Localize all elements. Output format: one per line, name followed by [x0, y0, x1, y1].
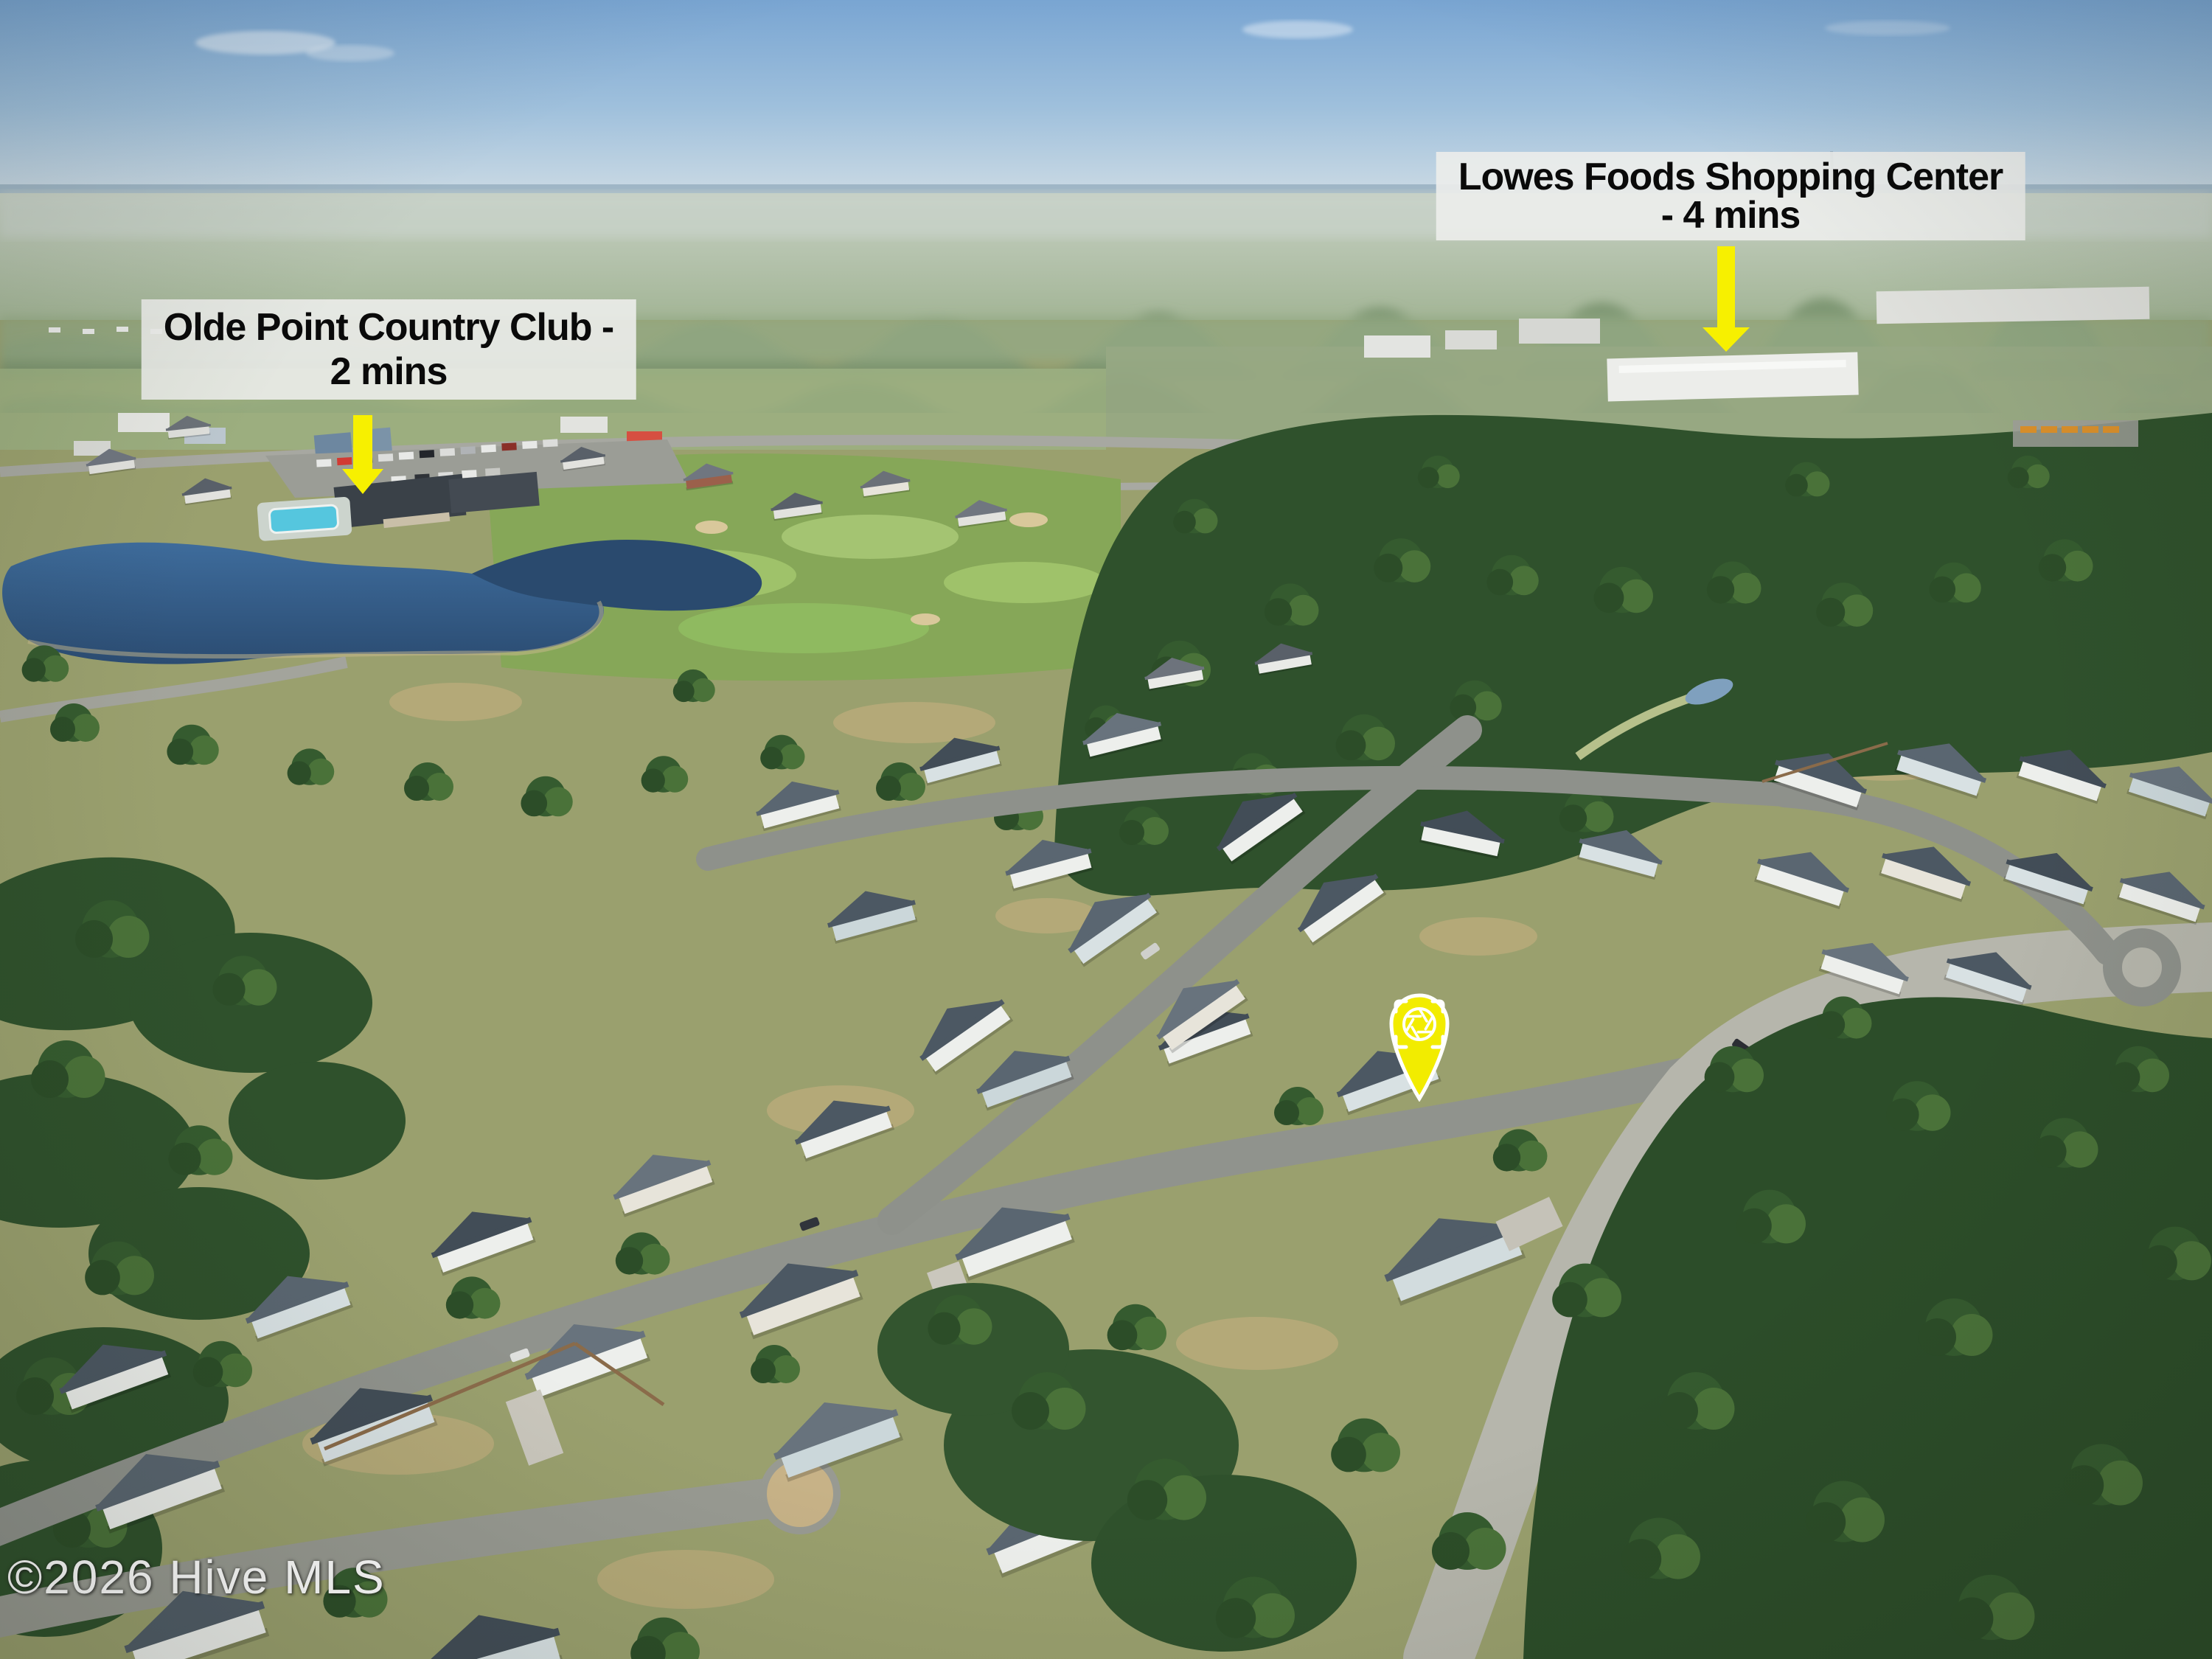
- label-line-1: Olde Point Country Club -: [164, 305, 614, 349]
- aerial-listing-photo: Olde Point Country Club - 2 mins Lowes F…: [0, 0, 2212, 1659]
- label-line-2: 2 mins: [164, 349, 614, 394]
- lowes-store-building: [1607, 352, 1858, 402]
- olde-point-down-arrow-icon: [341, 415, 385, 495]
- sand-trap: [911, 613, 940, 625]
- label-line-2: - 4 mins: [1458, 196, 2003, 234]
- label-line-1: Lowes Foods Shopping Center: [1458, 158, 2003, 196]
- property-location-pin: [1385, 990, 1453, 1102]
- mls-watermark: ©2026 Hive MLS: [7, 1550, 386, 1604]
- sand-trap: [695, 521, 728, 534]
- school-buses: [2013, 420, 2138, 447]
- lowes-down-arrow-icon: [1701, 246, 1751, 352]
- label-lowes-foods-shopping-center: Lowes Foods Shopping Center - 4 mins: [1436, 152, 2025, 240]
- aerial-scene: [0, 0, 2212, 1659]
- swimming-pool: [257, 496, 352, 541]
- sand-trap: [1009, 512, 1048, 527]
- label-olde-point-country-club: Olde Point Country Club - 2 mins: [142, 299, 636, 400]
